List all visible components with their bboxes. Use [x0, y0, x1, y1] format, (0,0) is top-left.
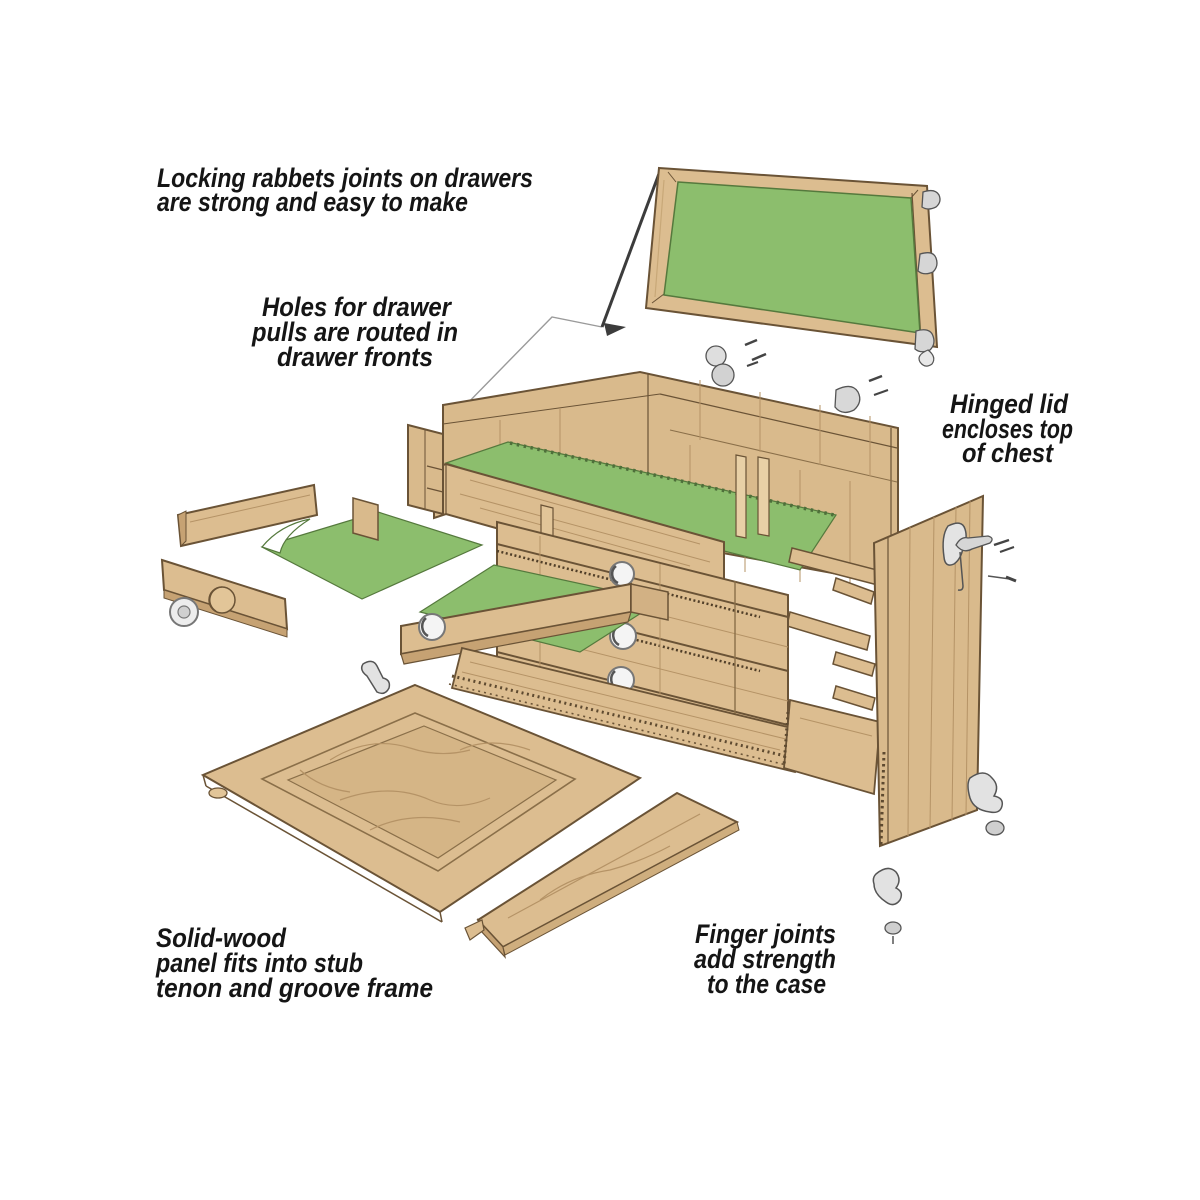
svg-text:tenon and groove frame: tenon and groove frame	[156, 973, 433, 1003]
svg-text:drawer fronts: drawer fronts	[277, 342, 433, 372]
svg-text:are strong and easy to make: are strong and easy to make	[157, 187, 468, 217]
svg-text:of chest: of chest	[962, 438, 1054, 468]
svg-text:to the case: to the case	[707, 969, 826, 999]
